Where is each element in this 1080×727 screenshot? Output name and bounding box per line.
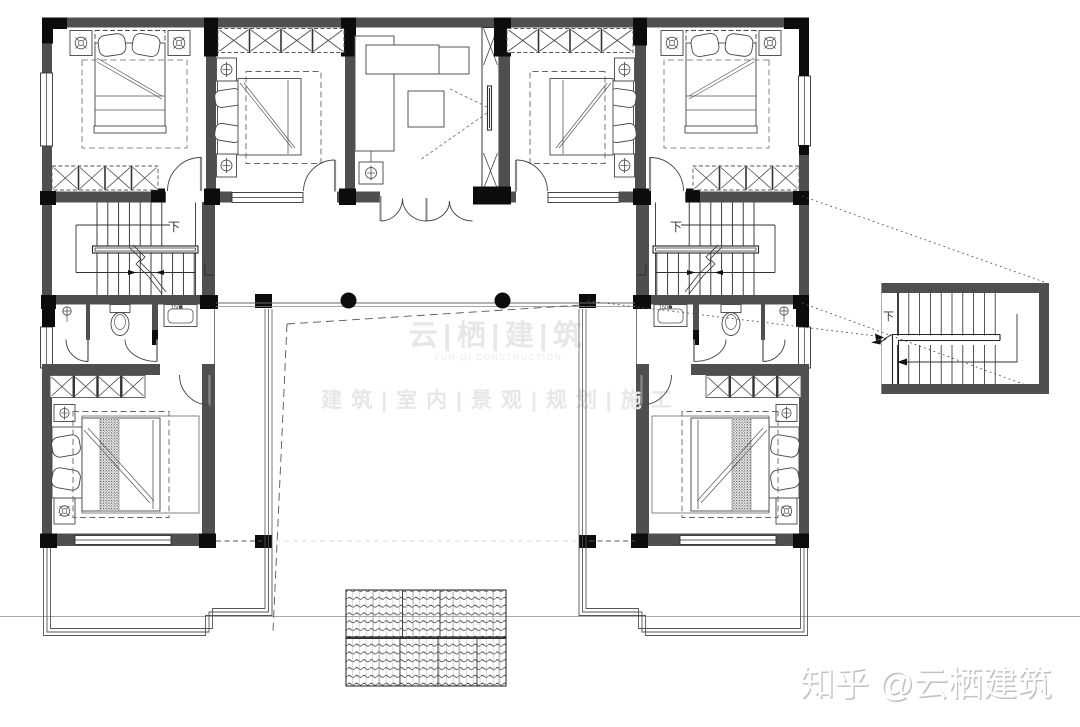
svg-text:1500: 1500: [171, 305, 183, 311]
svg-text:下: 下: [670, 220, 682, 234]
svg-text:下: 下: [883, 311, 894, 323]
svg-text:建筑|室内|景观|规划|施工: 建筑|室内|景观|规划|施工: [321, 388, 681, 412]
svg-text:YUN QI CONSTRUCTION: YUN QI CONSTRUCTION: [434, 352, 563, 362]
svg-text:1500: 1500: [659, 305, 671, 311]
svg-text:云|栖|建|筑: 云|栖|建|筑: [409, 319, 588, 352]
svg-text:下: 下: [168, 220, 180, 234]
svg-text:知乎 @云栖建筑: 知乎 @云栖建筑: [800, 666, 1052, 704]
